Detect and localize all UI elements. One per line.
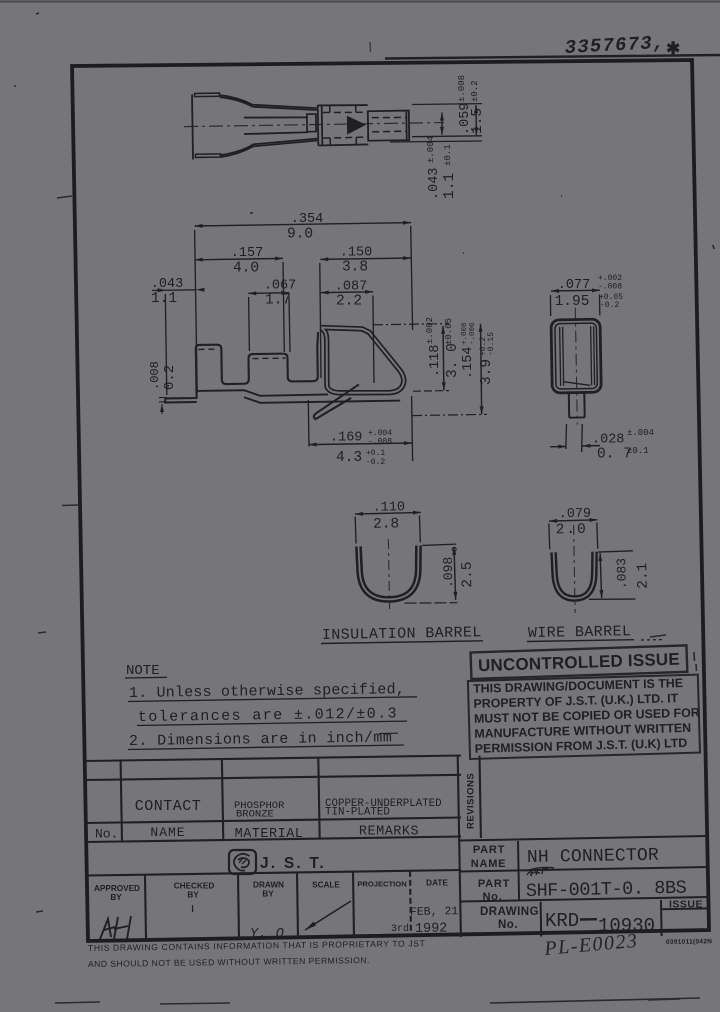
- svg-text:2.5: 2.5: [460, 561, 476, 587]
- svg-text:1.1: 1.1: [442, 173, 458, 199]
- svg-text:DATE: DATE: [426, 879, 448, 888]
- svg-text:.154: .154: [461, 347, 476, 379]
- svg-text:4.3: 4.3: [336, 450, 362, 466]
- svg-text:-.008: -.008: [598, 283, 622, 292]
- svg-text:3.9: 3.9: [479, 359, 495, 385]
- svg-text:BY: BY: [187, 891, 199, 900]
- svg-text:0.2: 0.2: [162, 365, 178, 390]
- svg-text:.157: .157: [231, 246, 263, 261]
- svg-text:2.8: 2.8: [373, 516, 399, 532]
- svg-text:WIRE BARREL: WIRE BARREL: [528, 623, 632, 642]
- svg-text:9.0: 9.0: [287, 227, 313, 243]
- svg-text:SCALE: SCALE: [312, 881, 340, 890]
- svg-text:±0.05: ±0.05: [444, 318, 454, 345]
- svg-text:TIN-PLATED: TIN-PLATED: [325, 807, 390, 819]
- svg-text:±0.1: ±0.1: [443, 144, 453, 166]
- svg-text:-0.2: -0.2: [366, 458, 385, 467]
- svg-text:1992: 1992: [415, 921, 448, 937]
- svg-text:CONTACT: CONTACT: [135, 798, 202, 815]
- svg-text:No.: No.: [482, 891, 502, 903]
- svg-text:1.7: 1.7: [265, 293, 291, 309]
- svg-text:.028: .028: [592, 433, 624, 448]
- svg-text:BY: BY: [262, 890, 274, 899]
- svg-text:±.002: ±.002: [425, 317, 435, 344]
- svg-text:NAME: NAME: [471, 858, 507, 870]
- svg-text:±.008: ±.008: [457, 75, 467, 102]
- svg-text:.077: .077: [558, 278, 590, 293]
- svg-text:.087: .087: [335, 280, 367, 295]
- svg-text:No.: No.: [95, 827, 118, 842]
- svg-text:PART: PART: [473, 844, 505, 856]
- svg-text:REMARKS: REMARKS: [359, 825, 419, 840]
- svg-text:AND SHOULD NOT BE USED WITHOUT: AND SHOULD NOT BE USED WITHOUT WRITTEN P…: [88, 955, 370, 969]
- svg-text:±.004: ±.004: [627, 428, 654, 438]
- svg-text:-.008: -.008: [368, 438, 392, 447]
- svg-text:3rd: 3rd: [391, 923, 409, 935]
- svg-text:+.008: +.008: [461, 322, 469, 345]
- svg-text:1.95: 1.95: [555, 294, 590, 310]
- svg-text:SHF-001T-0. 8BS: SHF-001T-0. 8BS: [526, 878, 687, 902]
- svg-text:.118: .118: [428, 345, 443, 377]
- svg-text:No.: No.: [498, 919, 518, 931]
- svg-text:.354: .354: [291, 212, 323, 227]
- svg-text:-0.15: -0.15: [487, 332, 496, 356]
- svg-text:+0.1: +0.1: [366, 449, 385, 458]
- svg-text:1.1: 1.1: [151, 291, 177, 307]
- svg-text:3. 0: 3. 0: [445, 343, 461, 378]
- svg-text:ISSUE: ISSUE: [669, 899, 703, 911]
- svg-text:±0.2: ±0.2: [470, 80, 480, 102]
- svg-text:.169: .169: [330, 431, 362, 446]
- svg-text:NOTE: NOTE: [126, 663, 160, 679]
- svg-text:BRONZE: BRONZE: [236, 809, 274, 821]
- svg-text:-.006: -.006: [469, 322, 477, 345]
- svg-text:2.1: 2.1: [635, 563, 651, 589]
- svg-text:.083: .083: [614, 558, 630, 589]
- svg-text:CHECKED: CHECKED: [174, 882, 215, 891]
- svg-text:3.8: 3.8: [342, 260, 368, 276]
- svg-text:.150: .150: [340, 246, 372, 261]
- svg-text:-0.2: -0.2: [600, 301, 619, 310]
- svg-text:.043: .043: [151, 277, 183, 292]
- svg-text:.110: .110: [372, 500, 405, 516]
- svg-text:2.0: 2.0: [555, 522, 587, 539]
- svg-text:.079: .079: [559, 507, 592, 523]
- svg-text:KRD: KRD: [545, 910, 579, 932]
- svg-text:±0.1: ±0.1: [627, 446, 649, 456]
- svg-text:NAME: NAME: [150, 825, 185, 840]
- svg-text:.067: .067: [264, 279, 296, 294]
- svg-text:DRAWING: DRAWING: [480, 906, 539, 918]
- svg-text:MATERIAL: MATERIAL: [235, 827, 304, 842]
- svg-text:PROJECTION: PROJECTION: [357, 880, 406, 889]
- svg-text:UNCONTROLLED ISSUE: UNCONTROLLED ISSUE: [478, 650, 680, 676]
- svg-text:±.004: ±.004: [426, 136, 436, 163]
- svg-text:J. S. T.: J. S. T.: [260, 855, 326, 872]
- svg-text:NH CONNECTOR: NH CONNECTOR: [527, 846, 659, 868]
- svg-text:1.5: 1.5: [470, 108, 486, 134]
- svg-text:.098: .098: [441, 557, 457, 588]
- svg-text:REVISIONS: REVISIONS: [466, 773, 477, 829]
- svg-text:0391011(042N: 0391011(042N: [666, 938, 712, 946]
- svg-text:.043: .043: [427, 168, 442, 200]
- svg-text:2.2: 2.2: [336, 294, 362, 310]
- svg-text:DRAWN: DRAWN: [253, 881, 284, 890]
- svg-text:APPROVED: APPROVED: [94, 884, 140, 893]
- svg-text:PART: PART: [478, 878, 510, 890]
- svg-text:BY: BY: [110, 893, 122, 902]
- svg-text:FEB, 21: FEB, 21: [410, 905, 459, 919]
- svg-text:4.0: 4.0: [233, 261, 259, 277]
- svg-text:.008: .008: [148, 361, 162, 390]
